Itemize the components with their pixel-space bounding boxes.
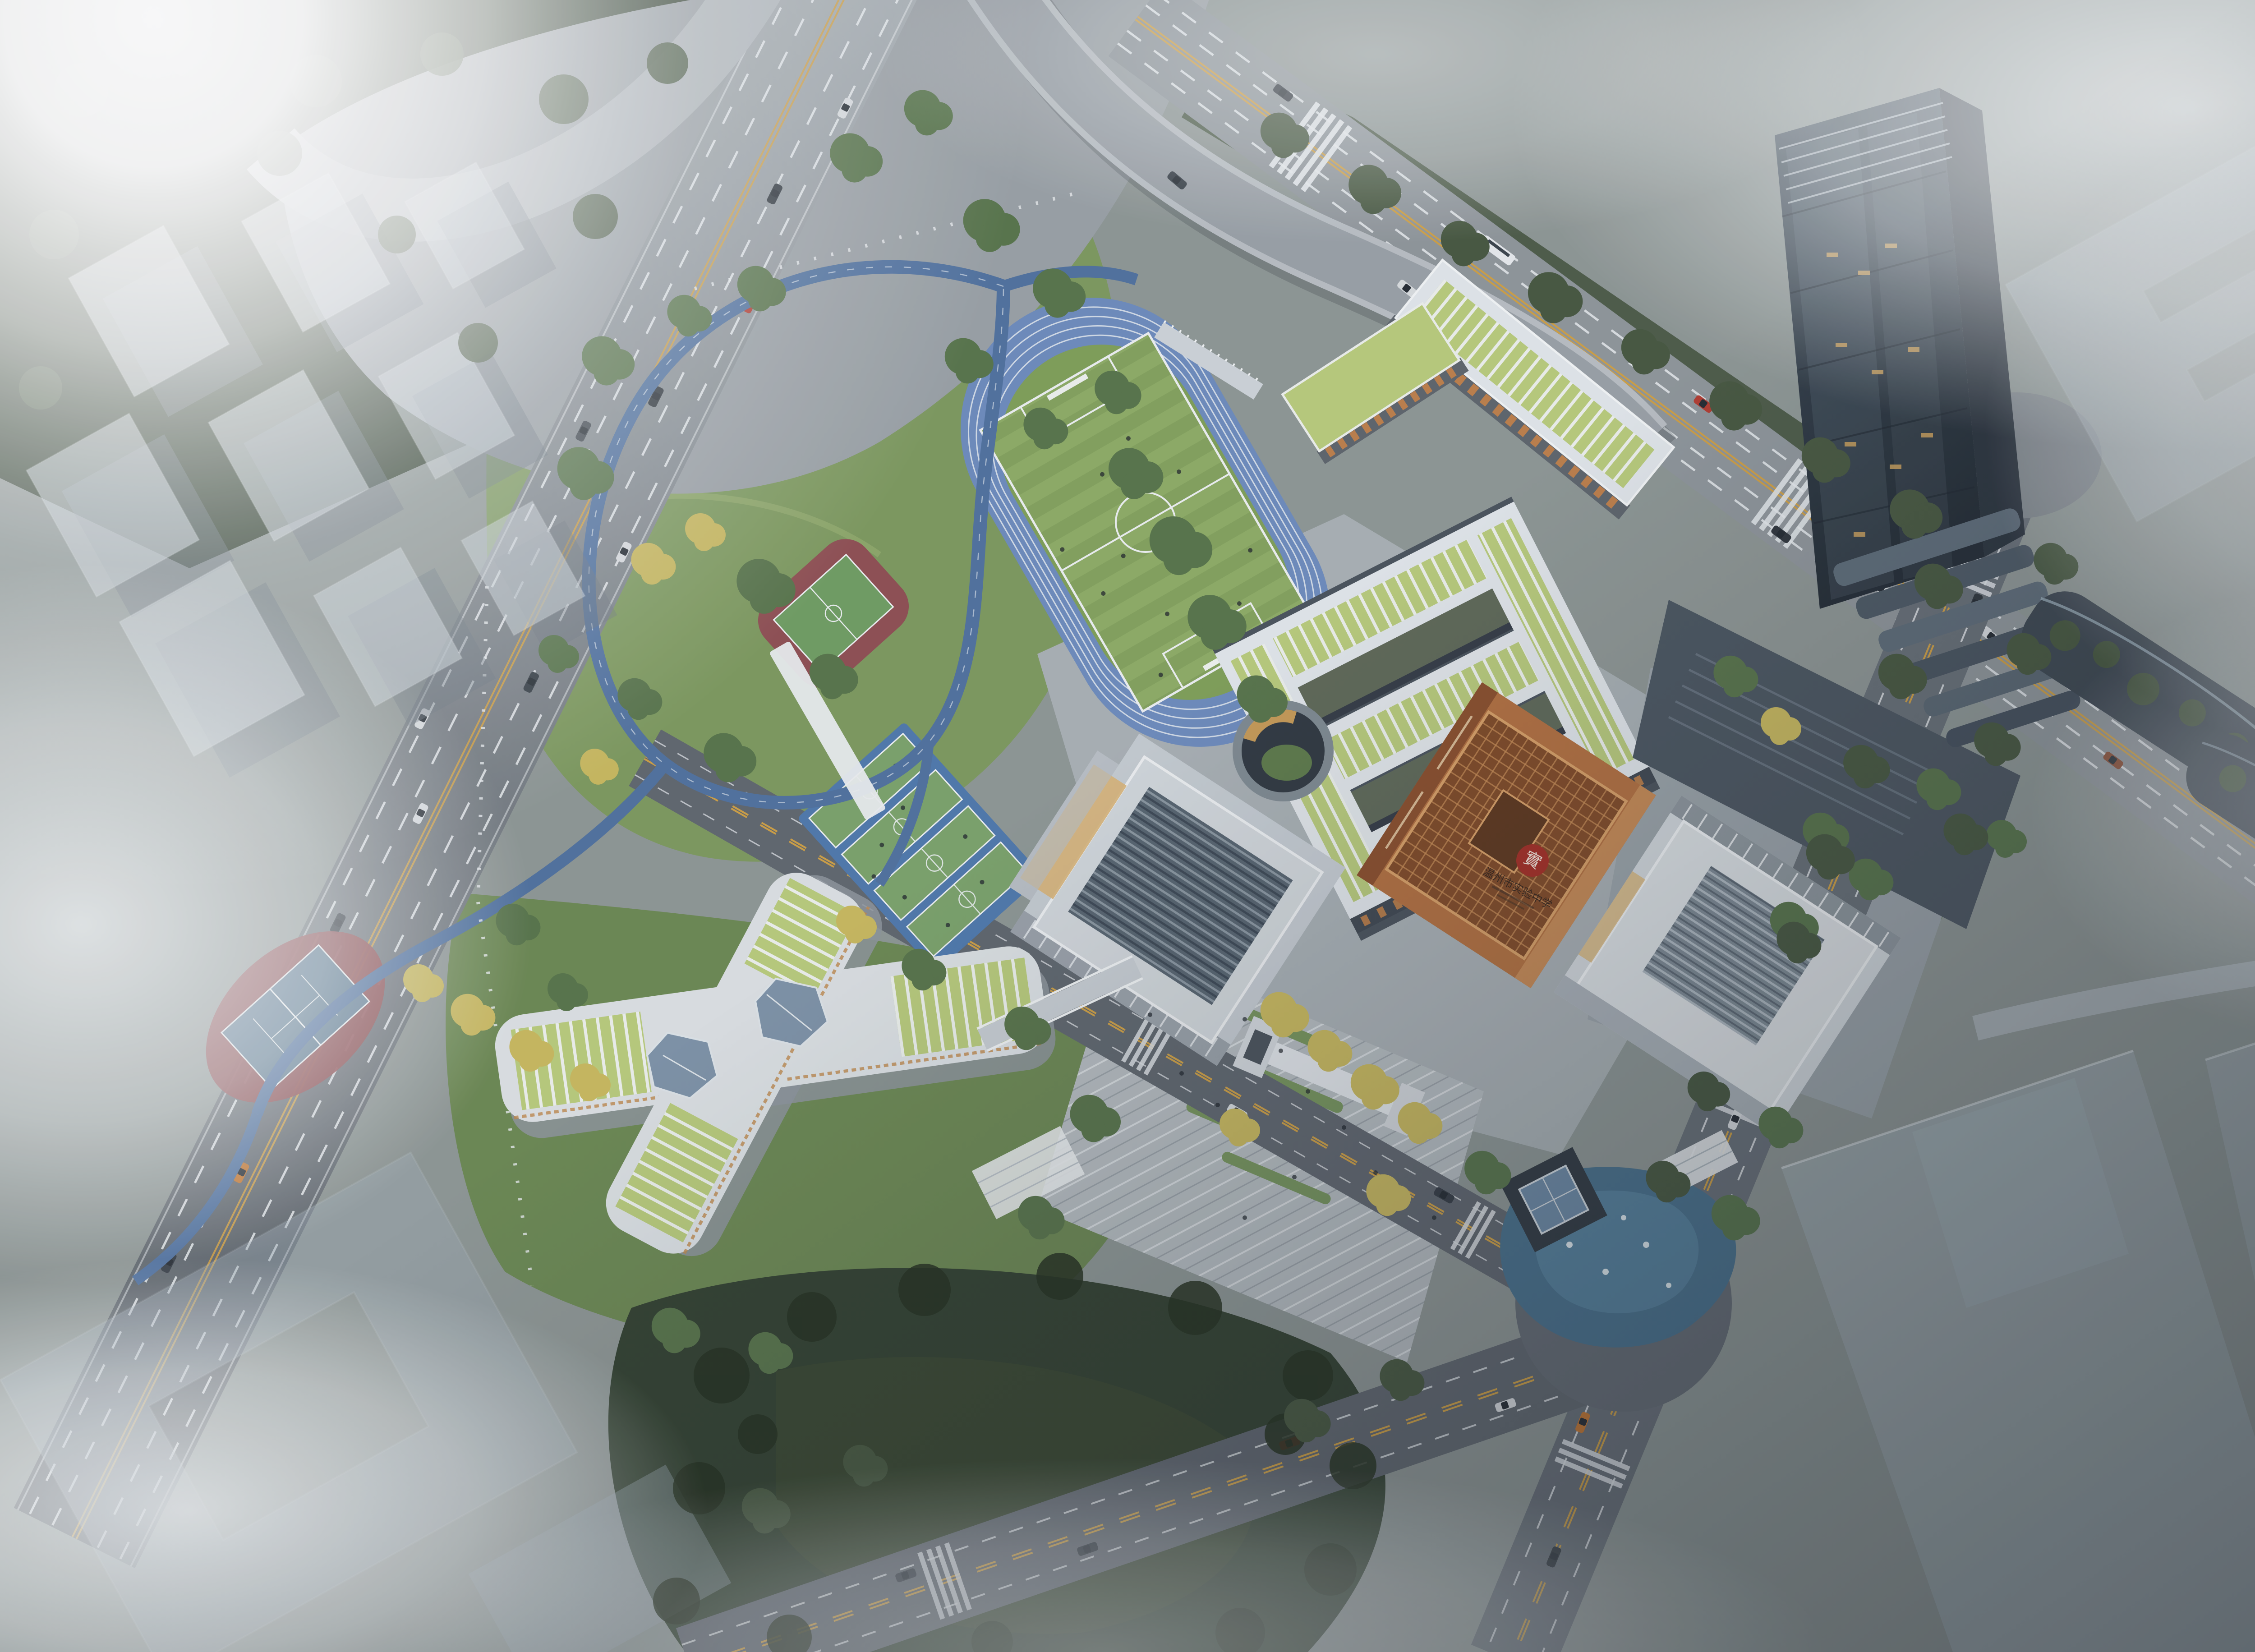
aerial-campus-rendering: 實 温州市实验中学 <box>0 0 2255 1652</box>
cool-grade <box>0 0 2255 1652</box>
atmosphere <box>0 0 2255 1652</box>
